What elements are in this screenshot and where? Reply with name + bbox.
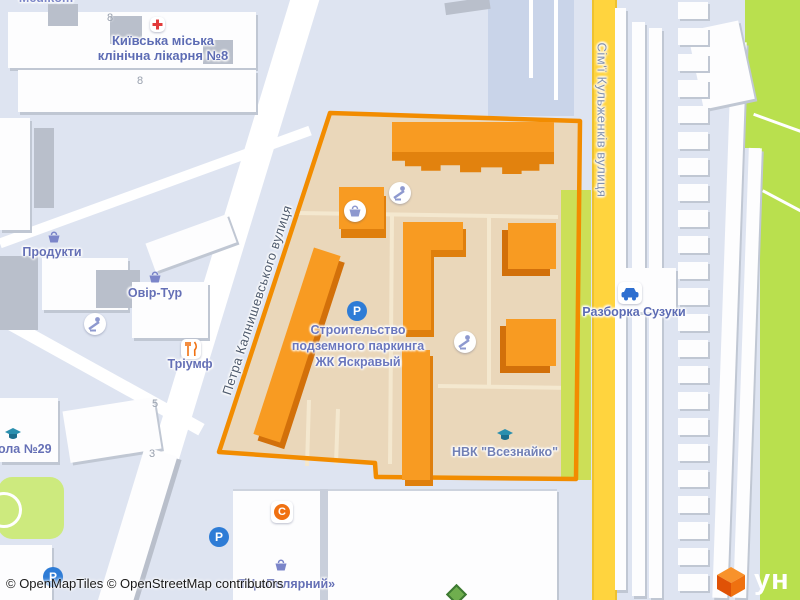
- garage-building: [678, 288, 708, 305]
- garage-building: [678, 548, 708, 565]
- house-number: 8: [107, 12, 113, 24]
- garage-building: [678, 106, 708, 123]
- garage-building: [678, 158, 708, 175]
- house-number: 3: [149, 448, 155, 460]
- lun-cube-icon: [714, 564, 748, 598]
- playground-icon: [454, 331, 476, 353]
- label-line: Київська міська: [112, 33, 214, 48]
- orange-building: [392, 122, 554, 152]
- label-line: ЖК Яскравый: [315, 355, 400, 369]
- garage-building: [678, 392, 708, 409]
- garage-building: [678, 444, 708, 461]
- garage-building: [678, 54, 708, 71]
- garage-building: [678, 80, 708, 97]
- map-canvas[interactable]: P P P C Medikom Київська міська клінічна…: [0, 0, 800, 600]
- garage-building: [678, 28, 708, 45]
- orange-building: [506, 319, 556, 366]
- restaurant-icon: [181, 339, 201, 359]
- shop-basket-icon: [46, 229, 62, 245]
- label-hospital: Київська міська клінічна лікарня №8: [98, 33, 229, 63]
- label-school-29: ола №29: [0, 442, 52, 457]
- orange-building-extrusion: [392, 152, 554, 174]
- label-line: Строительство: [310, 323, 405, 337]
- parking-lane-line: [529, 0, 533, 78]
- parking-lane-line: [554, 0, 558, 100]
- brand-c-icon: C: [271, 501, 293, 523]
- greenery-strip: [760, 0, 800, 600]
- garage-building: [678, 262, 708, 279]
- lun-watermark[interactable]: ун: [714, 561, 800, 600]
- building-gray: [34, 128, 54, 208]
- garage-building: [678, 210, 708, 227]
- garage-building: [678, 470, 708, 487]
- school-graduation-cap-icon: [496, 428, 514, 441]
- orange-building: [508, 223, 556, 269]
- garage-building: [678, 340, 708, 357]
- label-suzuki: Разборка Сузуки: [582, 305, 685, 320]
- shop-basket-icon: [147, 269, 163, 285]
- garage-building: [678, 236, 708, 253]
- brand-c-letter: C: [274, 504, 290, 520]
- orange-building: [403, 222, 431, 330]
- street-label-kulzhenkiv: Сім'ї Кульженків вулиця: [595, 43, 610, 198]
- shop-basket-icon: [344, 200, 366, 222]
- house-number: 5: [152, 398, 158, 410]
- parking-letter: P: [353, 304, 361, 318]
- parking-letter: P: [215, 530, 223, 544]
- garage-building: [678, 2, 708, 19]
- building-roof-block: [48, 4, 78, 26]
- label-line: клінічна лікарня №8: [98, 48, 229, 63]
- hospital-cross-icon: [150, 17, 165, 32]
- garage-building: [678, 574, 708, 591]
- playground-icon: [84, 313, 106, 335]
- garage-building: [678, 184, 708, 201]
- garage-square-column: [678, 2, 710, 600]
- lun-watermark-text: ун: [754, 564, 790, 597]
- garage-building: [678, 522, 708, 539]
- car-service-icon: [618, 282, 642, 304]
- label-produkty: Продукти: [22, 245, 81, 260]
- garage-building: [678, 366, 708, 383]
- parking-icon: P: [209, 527, 229, 547]
- label-construction-site: Строительство подземного паркинга ЖК Яск…: [292, 322, 424, 370]
- label-medikom: Medikom: [19, 0, 73, 6]
- shop-basket-icon: [273, 557, 289, 573]
- label-vseznaiko: НВК "Всезнайко": [452, 445, 558, 460]
- label-line: подземного паркинга: [292, 339, 424, 353]
- map-attribution[interactable]: © OpenMapTiles © OpenStreetMap contribut…: [6, 576, 283, 591]
- building-gray: [444, 0, 490, 15]
- house-number: 8: [137, 75, 143, 87]
- orange-building: [431, 222, 463, 250]
- garage-building: [678, 132, 708, 149]
- garage-building: [678, 496, 708, 513]
- parking-icon: P: [347, 301, 367, 321]
- school-graduation-cap-icon: [4, 427, 22, 440]
- label-ovir-tur: Овір-Тур: [128, 286, 182, 301]
- label-triumf: Тріумф: [167, 357, 212, 372]
- playground-icon: [389, 182, 411, 204]
- building: [0, 118, 30, 230]
- building-gray: [0, 256, 38, 330]
- garage-building: [678, 418, 708, 435]
